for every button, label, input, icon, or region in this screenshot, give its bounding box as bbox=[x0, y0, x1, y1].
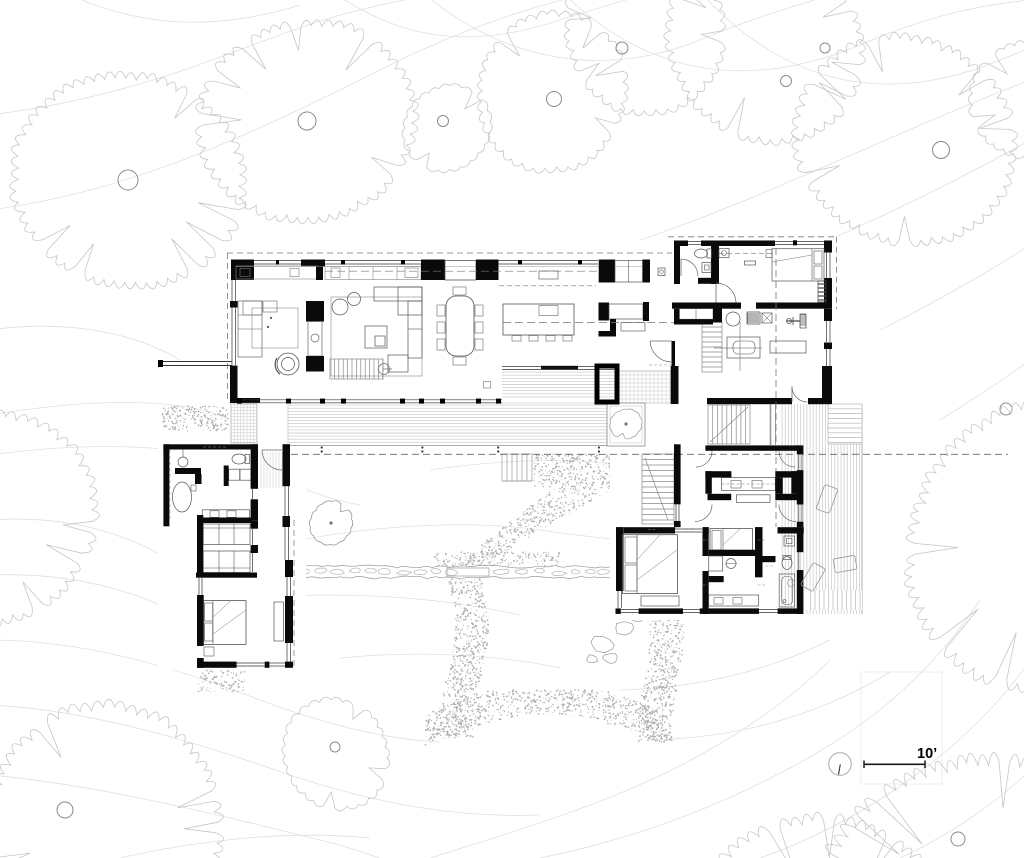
svg-text:10’: 10’ bbox=[917, 746, 937, 762]
